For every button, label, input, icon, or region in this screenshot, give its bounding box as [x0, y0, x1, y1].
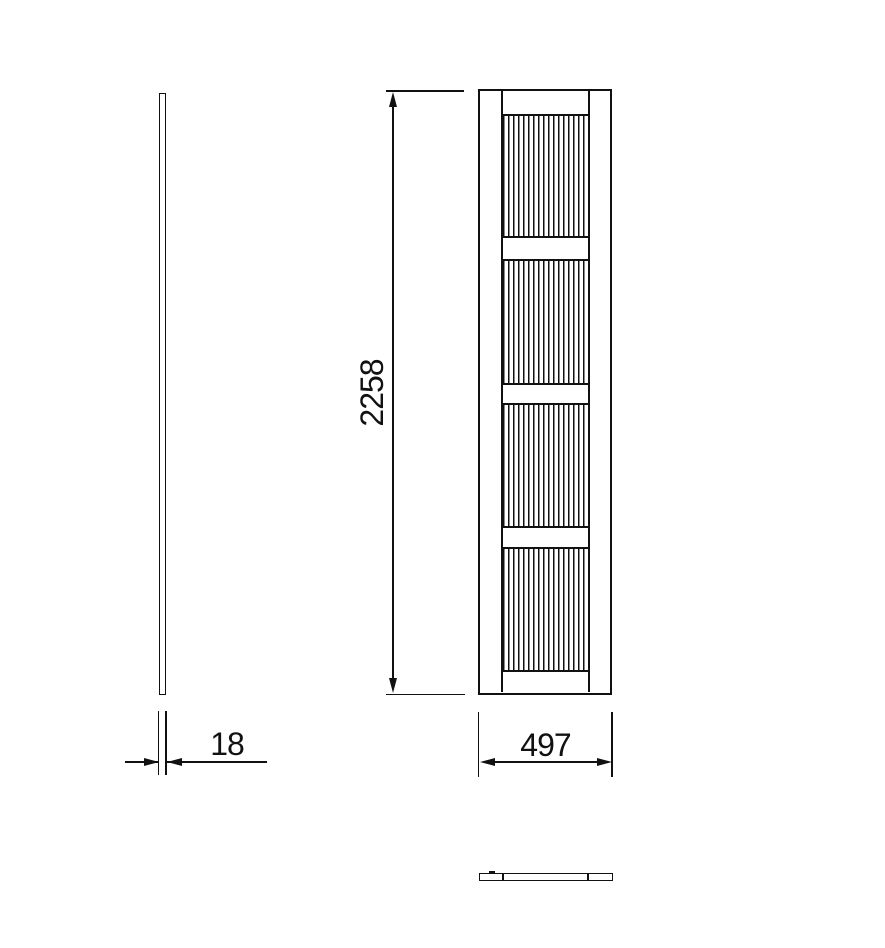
width-dim-label: 497 [520, 729, 570, 761]
front-view-sections [501, 91, 590, 692]
width-dim-arrow-right [597, 758, 612, 766]
panel-fluted-section [503, 116, 588, 237]
thickness-dim-arrow-in-right [167, 758, 182, 766]
top-view-panel [479, 873, 613, 881]
width-dim-extension-right [611, 712, 612, 777]
technical-drawing-page: { "drawing": { "type": "fluted panel tec… [0, 0, 885, 948]
width-dim-extension-left [478, 712, 479, 777]
height-dim-label: 2258 [356, 359, 388, 426]
thickness-dim-label: 18 [210, 728, 244, 760]
top-view-stile-line-right [587, 874, 589, 880]
height-dim-line [392, 98, 394, 688]
side-view-panel-edge [159, 93, 166, 695]
thickness-dim-tail-right [167, 761, 267, 763]
width-dim-arrow-left [480, 758, 495, 766]
panel-fluted-section [503, 261, 588, 383]
front-view-panel [478, 89, 612, 695]
panel-rail [503, 91, 588, 116]
panel-rail [503, 526, 588, 549]
height-dim-extension-top [386, 90, 464, 91]
top-view-stile-line-left [502, 874, 504, 880]
panel-rail [503, 383, 588, 405]
panel-fluted-section [503, 405, 588, 526]
height-dim-arrow-up [389, 92, 397, 107]
panel-fluted-section [503, 549, 588, 671]
panel-rail [503, 236, 588, 261]
panel-rail [503, 670, 588, 692]
height-dim-arrow-down [389, 678, 397, 693]
thickness-dim-arrow-in-left [144, 758, 159, 766]
height-dim-extension-bottom [386, 694, 465, 695]
